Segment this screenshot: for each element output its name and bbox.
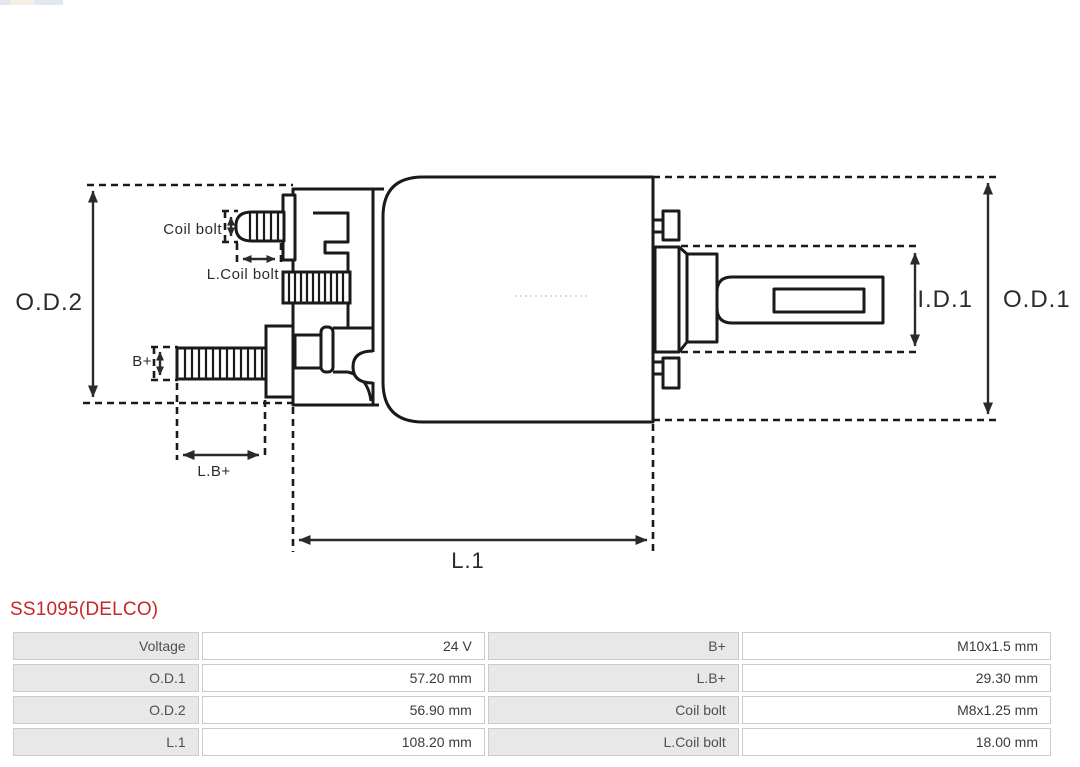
spec-label: L.1 xyxy=(13,728,199,756)
coil-bolt-boss xyxy=(283,272,350,303)
spec-label: O.D.1 xyxy=(13,664,199,692)
label-b-plus: B+ xyxy=(132,353,152,370)
solenoid-technical-diagram: O.D.2 O.D.1 I.D.1 L.1 Coil bolt L.Coil b… xyxy=(0,0,1080,595)
label-od1: O.D.1 xyxy=(1003,286,1071,313)
spec-label: L.Coil bolt xyxy=(488,728,739,756)
spec-value: 108.20 mm xyxy=(202,728,485,756)
product-title: SS1095(DELCO) xyxy=(10,599,158,621)
spec-value: 57.20 mm xyxy=(202,664,485,692)
table-row: O.D.2 56.90 mm Coil bolt M8x1.25 mm xyxy=(13,696,1051,724)
spec-label: L.B+ xyxy=(488,664,739,692)
label-lb-plus: L.B+ xyxy=(197,463,230,480)
terminal-top xyxy=(663,211,679,240)
label-od2: O.D.2 xyxy=(15,289,83,316)
spec-value: 56.90 mm xyxy=(202,696,485,724)
coil-bolt-stud xyxy=(236,212,284,241)
spec-value: 29.30 mm xyxy=(742,664,1051,692)
label-l1: L.1 xyxy=(451,548,485,573)
spec-value: 24 V xyxy=(202,632,485,660)
spec-value: 18.00 mm xyxy=(742,728,1051,756)
label-id1: I.D.1 xyxy=(917,286,973,313)
spec-label: Voltage xyxy=(13,632,199,660)
spec-label: B+ xyxy=(488,632,739,660)
table-row: Voltage 24 V B+ M10x1.5 mm xyxy=(13,632,1051,660)
spec-table: Voltage 24 V B+ M10x1.5 mm O.D.1 57.20 m… xyxy=(10,628,1054,760)
label-coil-bolt: Coil bolt xyxy=(163,221,222,238)
spec-value: M8x1.25 mm xyxy=(742,696,1051,724)
solenoid-body xyxy=(383,177,653,422)
table-row: L.1 108.20 mm L.Coil bolt 18.00 mm xyxy=(13,728,1051,756)
rear-assembly xyxy=(653,211,883,388)
table-row: O.D.1 57.20 mm L.B+ 29.30 mm xyxy=(13,664,1051,692)
spec-value: M10x1.5 mm xyxy=(742,632,1051,660)
label-lcoil-bolt: L.Coil bolt xyxy=(207,266,280,283)
end-cap xyxy=(655,247,679,352)
spec-label: O.D.2 xyxy=(13,696,199,724)
plunger-slot xyxy=(774,289,864,312)
bearing-boss xyxy=(687,254,717,342)
terminal-bottom xyxy=(663,358,679,388)
spec-label: Coil bolt xyxy=(488,696,739,724)
